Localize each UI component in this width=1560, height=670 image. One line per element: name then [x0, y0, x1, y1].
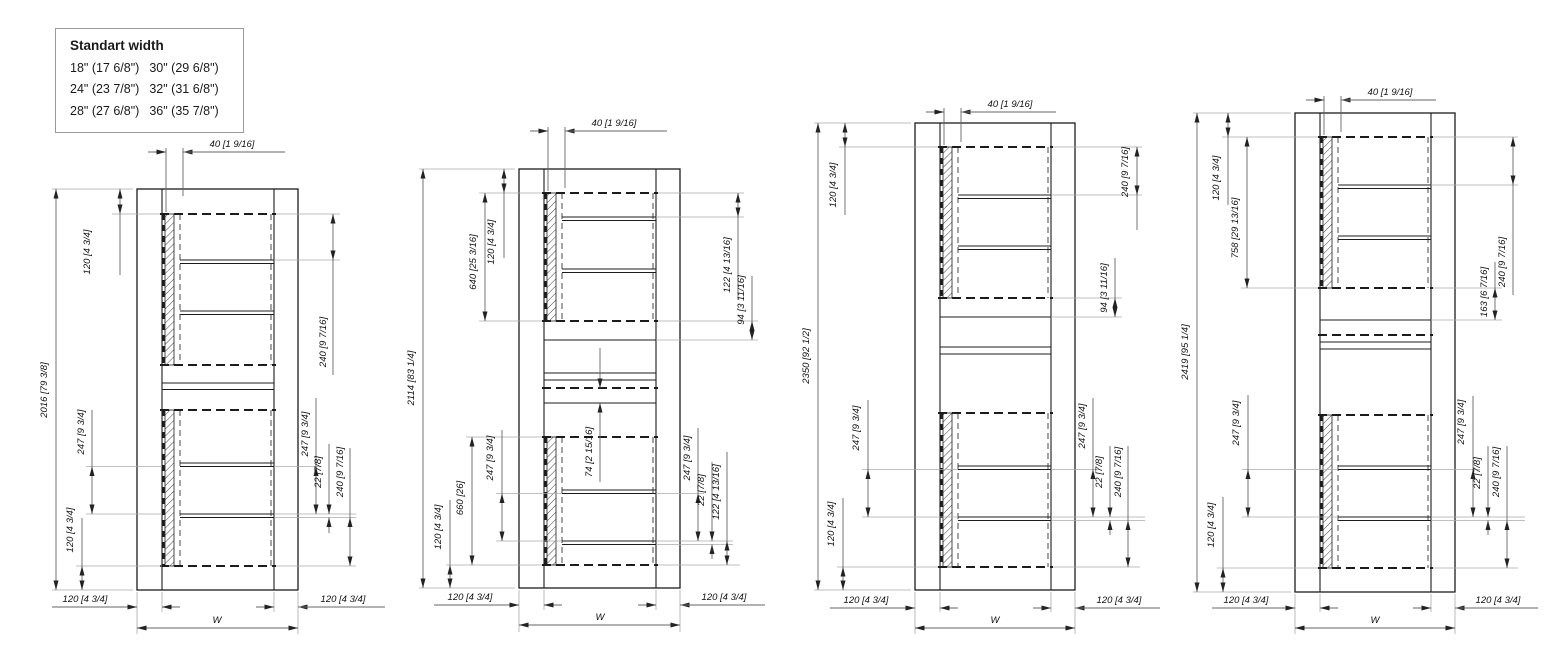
cabinet-structure: [915, 123, 1075, 590]
dim-right-shelf-pitch: 247 [9 3/4]: [682, 435, 693, 481]
dim-bottom-right-wall: 120 [4 3/4]: [321, 594, 366, 605]
dim-top-offset: 40 [1 9/16]: [210, 139, 255, 150]
dim-shelf-thickness: 22 [7/8]: [696, 474, 707, 507]
dimension-lines: [1193, 96, 1538, 634]
dim-right-mid-gap: 94 [3 11/16]: [1099, 263, 1110, 313]
dimension-lines: [52, 148, 385, 634]
dim-right-mid-gap: 163 [6 7/16]: [1479, 267, 1490, 318]
dim-shelf-thickness: 22 [7/8]: [313, 456, 324, 489]
dim-width: W: [1371, 615, 1381, 626]
dim-right-top-spacing: 122 [4 13/16]: [722, 237, 733, 293]
shelves: [958, 195, 1051, 521]
legend-table: 18" (17 6/8") 30" (29 6/8") 24" (23 7/8"…: [70, 58, 229, 122]
dim-left-shelf-pitch: 247 [9 3/4]: [851, 405, 862, 451]
dim-left-bottom-rail: 120 [4 3/4]: [433, 504, 444, 549]
dim-left-shelf-pitch: 247 [9 3/4]: [76, 409, 87, 455]
cabinet-elevation-3: 2350 [92 1/2] 40 [1 9/16] 120 [4 3/4] 24…: [801, 99, 1160, 634]
dim-width: W: [213, 615, 223, 626]
legend-cell: 24" (23 7/8"): [70, 79, 149, 100]
dim-top-offset: 40 [1 9/16]: [1368, 87, 1413, 98]
hinge-hatch-strip: [547, 437, 556, 565]
dim-overall-height: 2350 [92 1/2]: [801, 328, 812, 385]
dim-right-top-spacing: 240 [9 7/16]: [1120, 147, 1131, 199]
dim-left-top-rail: 120 [4 3/4]: [82, 229, 93, 274]
dim-bottom-left-wall: 120 [4 3/4]: [844, 595, 889, 606]
legend-cell: 36" (35 7/8"): [149, 101, 228, 122]
dim-right-shelf-pitch: 247 [9 3/4]: [300, 411, 311, 457]
dim-bottom-left-wall: 120 [4 3/4]: [1224, 595, 1269, 606]
dim-left-shelf-pitch: 247 [9 3/4]: [485, 435, 496, 481]
dim-bottom-right-wall: 120 [4 3/4]: [1097, 595, 1142, 606]
cabinet-elevation-1: 2016 [79 3/8] 40 [1 9/16] 120 [4 3/4] 24…: [39, 139, 385, 634]
dim-left-lower-opening: 660 [26]: [455, 480, 466, 515]
cabinet-structure: [137, 189, 298, 590]
dim-overall-height: 2114 [83 1/4]: [406, 350, 417, 406]
dim-shelf-thickness: 22 [7/8]: [1094, 456, 1105, 489]
shelves: [562, 217, 656, 545]
hinge-hatch-strip: [1323, 137, 1332, 288]
shelves: [180, 260, 274, 518]
dim-bottom-left-wall: 120 [4 3/4]: [63, 594, 108, 605]
legend-title: Standart width: [70, 38, 229, 53]
dim-right-mid-gap: 94 [3 11/16]: [736, 275, 747, 325]
dim-left-top-rail: 120 [4 3/4]: [828, 162, 839, 207]
dim-overall-height: 2419 [95 1/4]: [1180, 324, 1191, 381]
dim-right-bottom-spacing: 122 [4 13/16]: [711, 464, 722, 520]
cabinet-elevation-4: 2419 [95 1/4] 40 [1 9/16] 120 [4 3/4] 75…: [1180, 87, 1538, 634]
dim-bottom-left-wall: 120 [4 3/4]: [448, 592, 493, 603]
dim-right-bottom-spacing: 240 [9 7/16]: [335, 447, 346, 499]
hinge-hatch-strip: [547, 193, 556, 321]
dim-overall-height: 2016 [79 3/8]: [39, 362, 50, 419]
legend-cell: 28" (27 6/8"): [70, 101, 149, 122]
dim-right-shelf-pitch: 247 [9 3/4]: [1077, 403, 1088, 449]
dim-shelf-thickness: 22 [7/8]: [1472, 457, 1483, 490]
dim-left-upper-opening: 758 [29 13/16]: [1230, 197, 1241, 258]
legend-cell: 32" (31 6/8"): [149, 79, 228, 100]
legend-cell: 30" (29 6/8"): [149, 58, 228, 79]
dim-width: W: [991, 615, 1001, 626]
dim-left-shelf-pitch: 247 [9 3/4]: [1231, 400, 1242, 446]
dim-left-bottom-rail: 120 [4 3/4]: [1206, 502, 1217, 547]
dim-right-bottom-spacing: 240 [9 7/16]: [1491, 447, 1502, 499]
dimension-lines: [814, 108, 1160, 634]
standard-width-legend: Standart width 18" (17 6/8") 30" (29 6/8…: [55, 28, 244, 133]
cabinet-elevation-2: 2114 [83 1/4] 40 [1 9/16] 120 [4 3/4] 64…: [406, 118, 765, 632]
dim-left-top-rail: 120 [4 3/4]: [486, 219, 497, 264]
hinge-hatch-strip: [943, 147, 952, 298]
dim-left-bottom-rail: 120 [4 3/4]: [65, 507, 76, 552]
dim-right-bottom-spacing: 240 [9 7/16]: [1113, 447, 1124, 499]
dim-width: W: [596, 612, 606, 623]
cabinet-structure: [519, 169, 680, 588]
dim-bottom-right-wall: 120 [4 3/4]: [1476, 595, 1521, 606]
dim-top-offset: 40 [1 9/16]: [988, 99, 1033, 110]
dim-bottom-right-wall: 120 [4 3/4]: [702, 592, 747, 603]
hinge-hatch-strip: [943, 413, 952, 567]
dim-right-top-spacing: 240 [9 7/16]: [318, 317, 329, 369]
shelves: [1338, 185, 1431, 521]
hinge-hatch-strip: [1323, 415, 1332, 568]
dim-right-shelf-pitch: 247 [9 3/4]: [1456, 399, 1467, 445]
dim-center-gap: 74 [2 15/16]: [584, 427, 595, 478]
hinge-hatch-strip: [165, 410, 174, 566]
dim-right-top-spacing: 240 [9 7/16]: [1497, 237, 1508, 289]
dim-left-upper-opening: 640 [25 3/16]: [468, 234, 479, 290]
dim-top-offset: 40 [1 9/16]: [592, 118, 637, 129]
hinge-hatch-strip: [165, 214, 174, 365]
legend-cell: 18" (17 6/8"): [70, 58, 149, 79]
dim-left-top-rail: 120 [4 3/4]: [1211, 155, 1222, 200]
dim-left-bottom-rail: 120 [4 3/4]: [826, 501, 837, 546]
